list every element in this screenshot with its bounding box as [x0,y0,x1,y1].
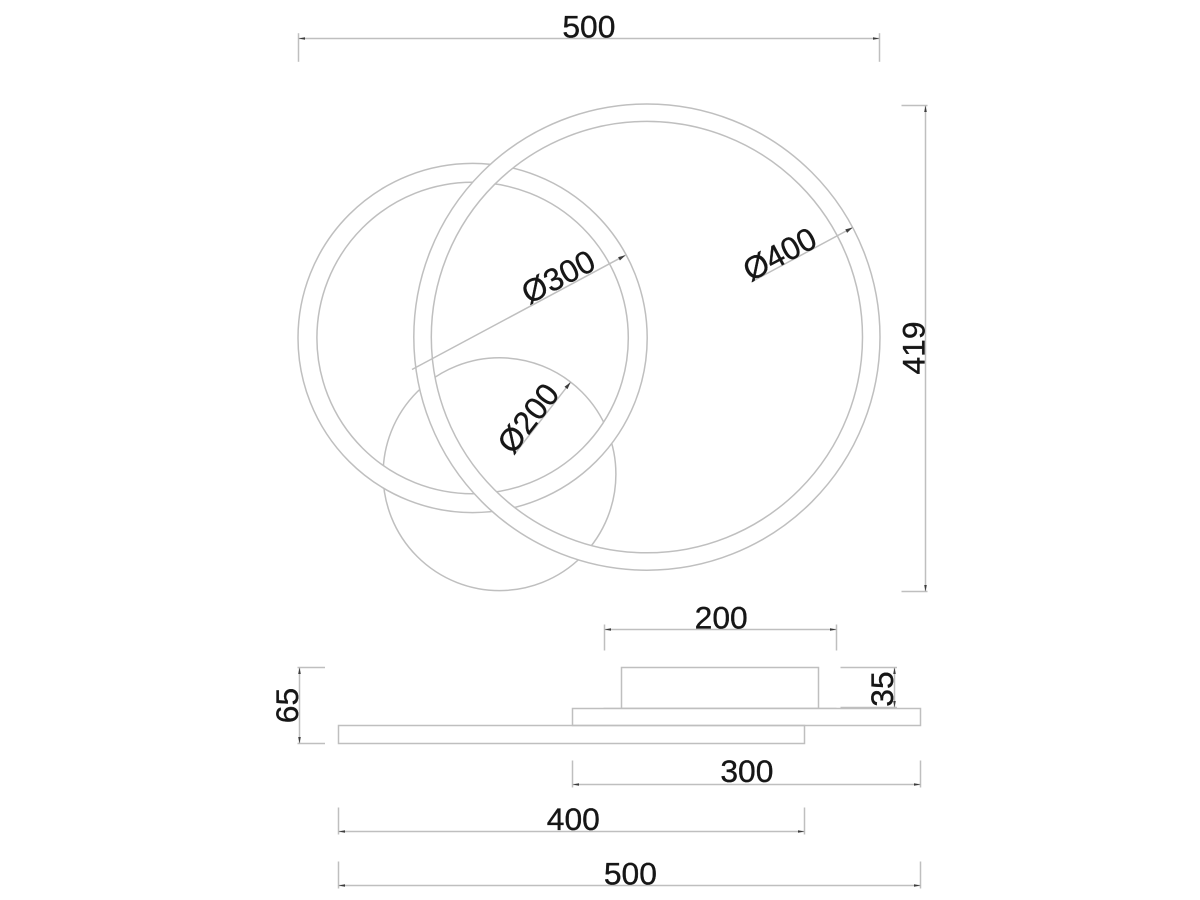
svg-text:400: 400 [547,801,600,837]
svg-text:500: 500 [604,856,657,892]
svg-text:500: 500 [562,9,615,45]
svg-text:300: 300 [720,753,773,789]
svg-text:200: 200 [695,600,748,636]
svg-text:35: 35 [864,671,900,706]
svg-text:419: 419 [896,321,932,374]
svg-text:65: 65 [269,688,305,723]
